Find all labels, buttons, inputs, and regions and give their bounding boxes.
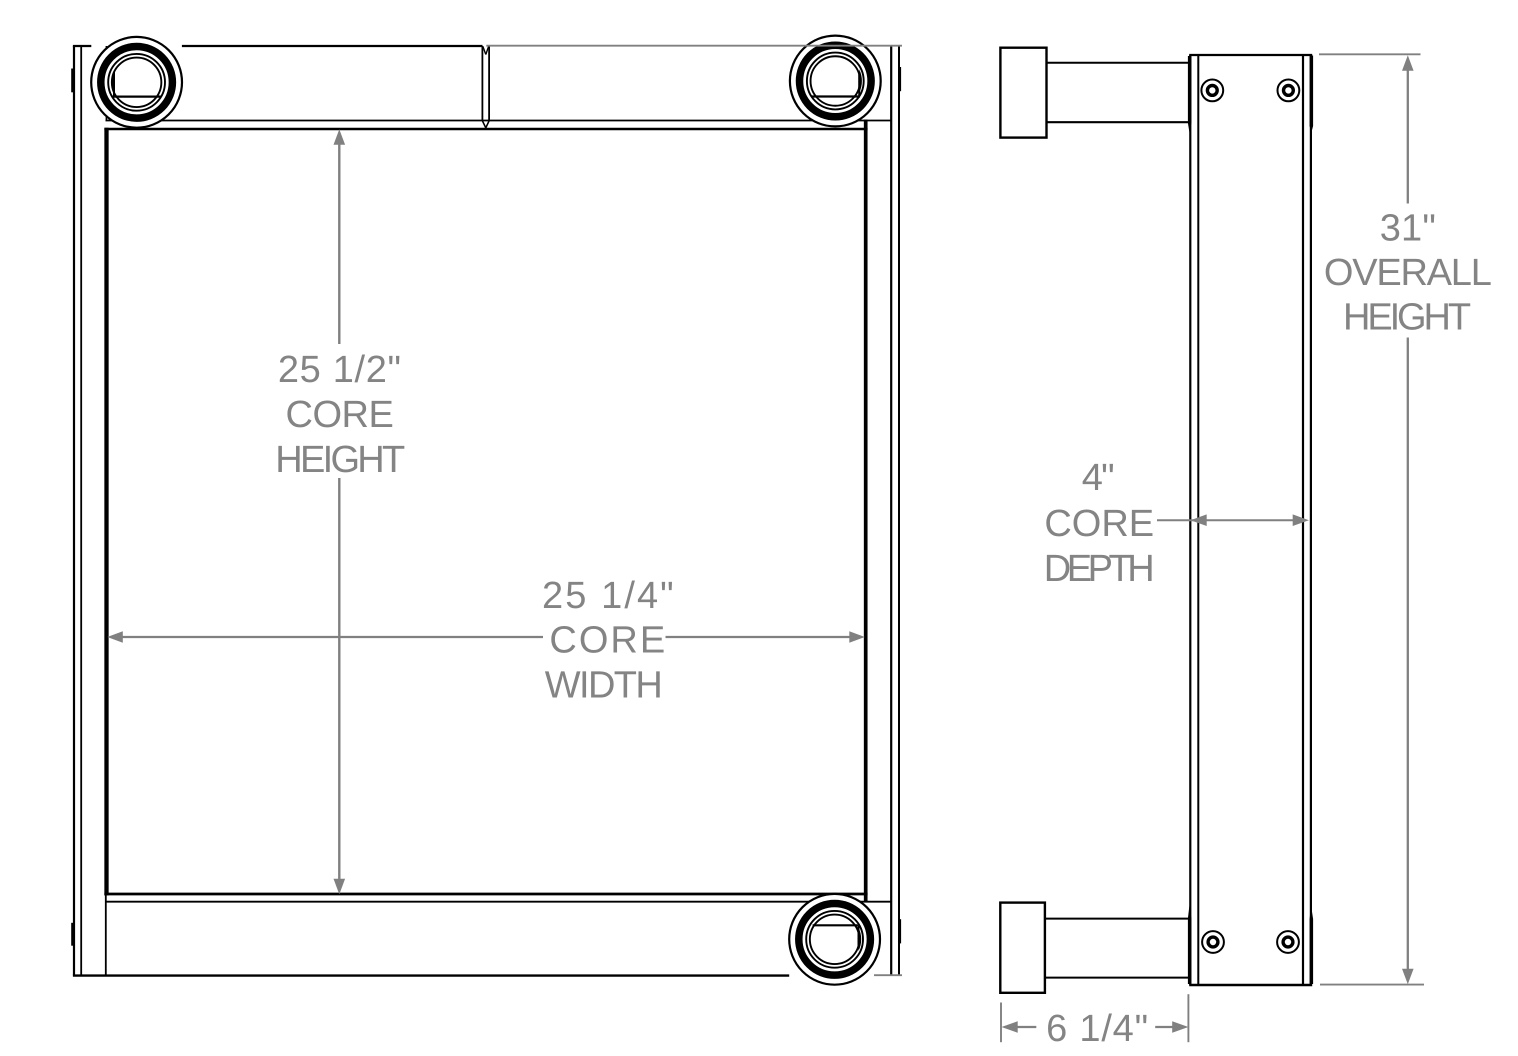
svg-text:WIDTH: WIDTH bbox=[545, 665, 662, 707]
svg-text:CORE: CORE bbox=[1044, 503, 1154, 545]
svg-text:6 1/4": 6 1/4" bbox=[1046, 1008, 1149, 1050]
svg-text:HEIGHT: HEIGHT bbox=[1343, 297, 1471, 339]
svg-text:OVERALL: OVERALL bbox=[1324, 252, 1491, 294]
svg-text:DEPTH: DEPTH bbox=[1044, 548, 1152, 590]
svg-text:4": 4" bbox=[1082, 457, 1113, 499]
svg-text:CORE: CORE bbox=[549, 619, 667, 661]
svg-text:31": 31" bbox=[1380, 207, 1436, 249]
svg-text:25 1/4": 25 1/4" bbox=[542, 575, 676, 617]
svg-text:CORE: CORE bbox=[286, 394, 394, 436]
svg-text:25 1/2": 25 1/2" bbox=[278, 349, 402, 391]
svg-text:HEIGHT: HEIGHT bbox=[275, 439, 405, 481]
